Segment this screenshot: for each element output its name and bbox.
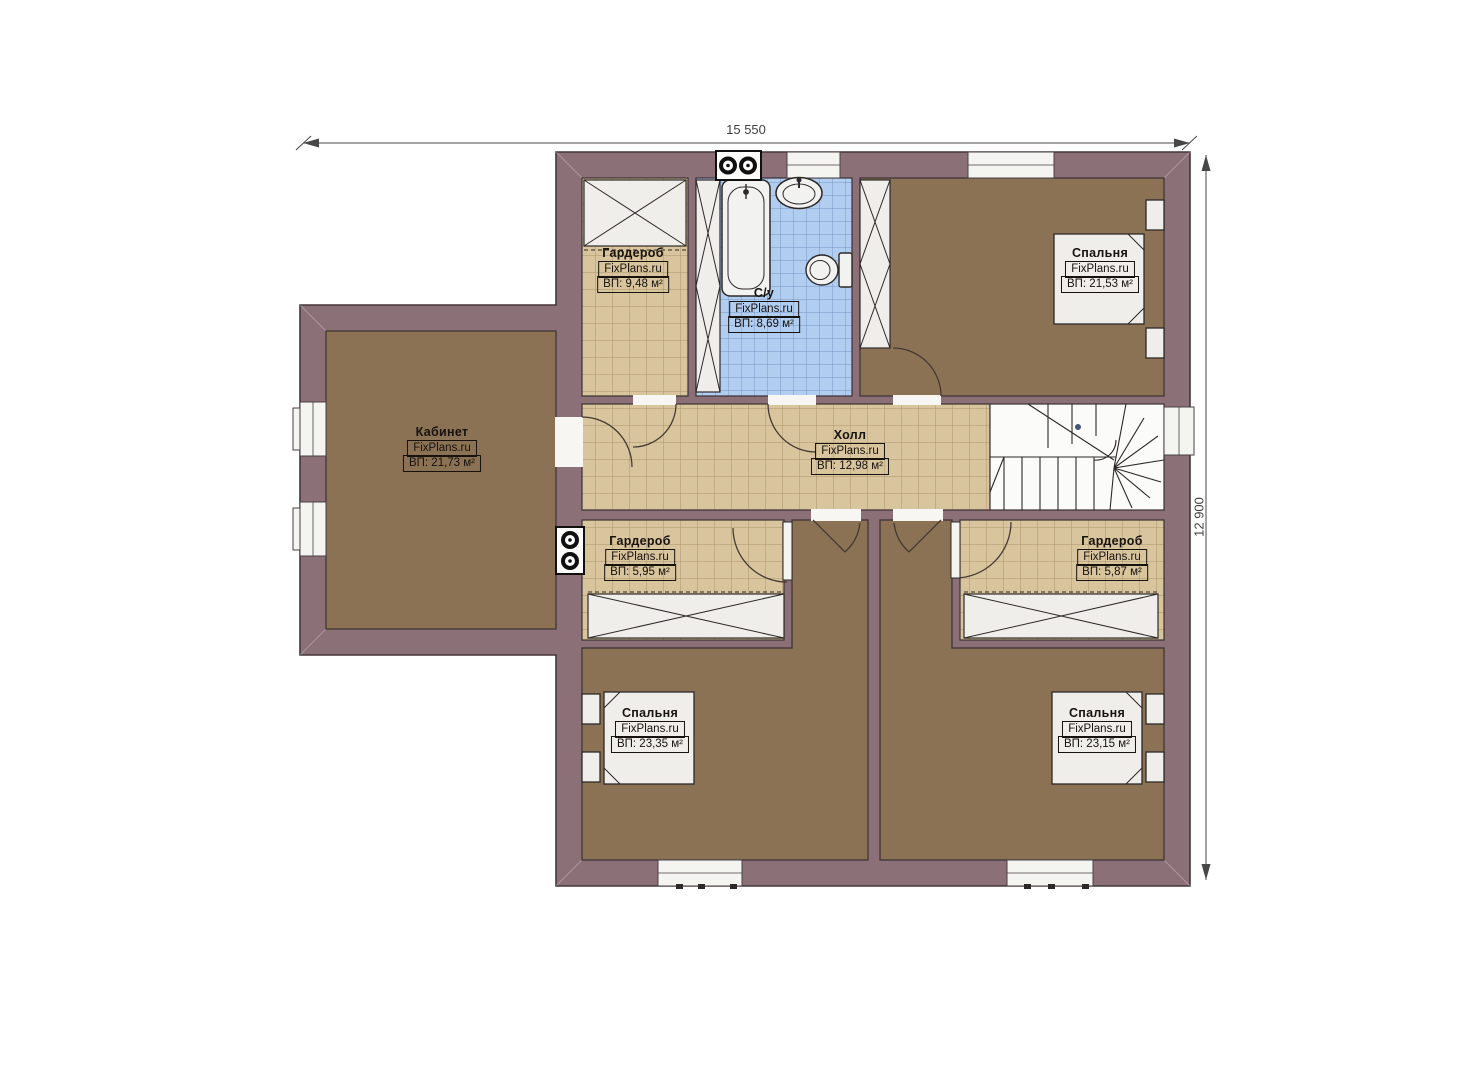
room-office-floor	[326, 331, 556, 629]
closet-bedroom-top	[860, 180, 890, 348]
nightstand	[1146, 694, 1164, 724]
door-opening-wardrobe-top	[633, 395, 676, 405]
dimension-line-top	[296, 136, 1197, 150]
stair-direction-marker	[1075, 424, 1081, 430]
room-hall-floor	[582, 404, 990, 510]
closet-wardrobe-right	[964, 592, 1158, 638]
nightstand	[582, 694, 600, 724]
dimension-line-right	[1202, 155, 1211, 880]
floor-plan: Гардероб FixPlans.ru ВП: 9,48 м² С/у Fix…	[0, 0, 1473, 1080]
closet-wardrobe-left	[588, 592, 784, 638]
window-office-sill-upper	[293, 408, 300, 450]
closet-bathroom-left	[696, 180, 720, 392]
door-opening-bedroom-top	[893, 395, 941, 405]
toilet	[806, 253, 852, 287]
door-opening-office	[555, 417, 583, 467]
door-opening-hall-bl	[811, 509, 861, 521]
nightstand	[1146, 200, 1164, 230]
door-opening-bathroom	[768, 395, 816, 405]
door-leaf-wardrobe-right	[951, 522, 960, 578]
nightstand	[1146, 328, 1164, 358]
door-opening-hall-br	[893, 509, 943, 521]
window-office-sill-lower	[293, 508, 300, 550]
closet-wardrobe-top	[584, 180, 688, 250]
nightstand	[1146, 752, 1164, 782]
floor-plan-drawing	[0, 0, 1473, 1080]
flue-icon-top	[716, 151, 761, 180]
sink	[776, 178, 822, 209]
nightstand	[582, 752, 600, 782]
flue-icon-left	[556, 527, 584, 574]
door-leaf-wardrobe-left	[783, 522, 792, 580]
bathtub	[722, 180, 770, 296]
